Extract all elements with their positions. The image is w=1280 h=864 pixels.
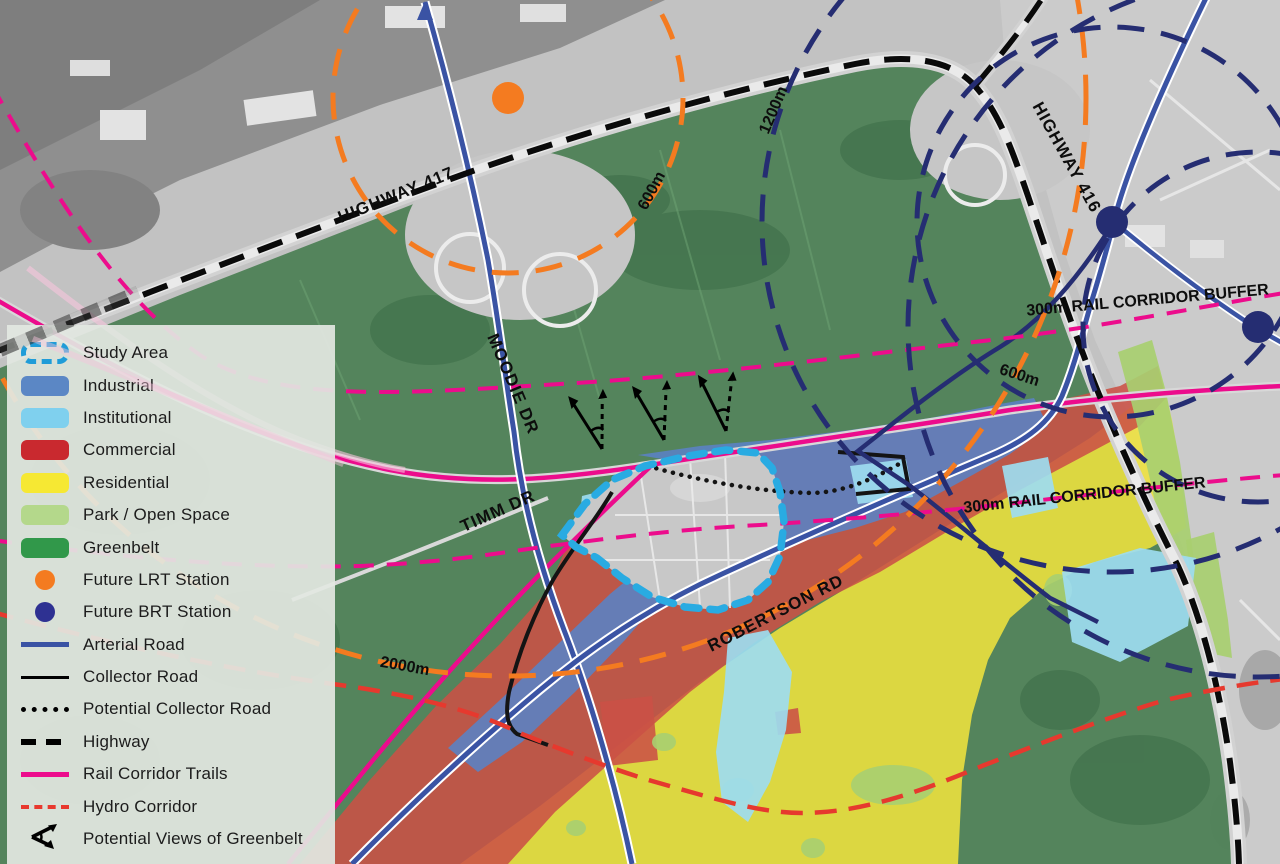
park-open-space-symbol bbox=[21, 505, 69, 525]
institutional-swatch bbox=[21, 408, 69, 428]
rail-corridor-trails-symbol bbox=[21, 772, 69, 777]
potential-collector-road-symbol bbox=[21, 707, 69, 712]
legend-item-future-brt-station: Future BRT Station bbox=[21, 596, 335, 628]
legend-item-potential-views-of-greenbelt: Potential Views of Greenbelt bbox=[21, 823, 335, 855]
hydro-corridor-symbol bbox=[21, 805, 69, 809]
legend-item-label: Potential Views of Greenbelt bbox=[83, 829, 303, 849]
legend-item-arterial-road: Arterial Road bbox=[21, 629, 335, 661]
legend-item-residential: Residential bbox=[21, 467, 335, 499]
potential-views-icon bbox=[27, 822, 63, 857]
future-brt-station-dot bbox=[1096, 206, 1128, 238]
future-brt-station-dot bbox=[1242, 311, 1274, 343]
legend-item-industrial: Industrial bbox=[21, 369, 335, 401]
legend-item-label: Future BRT Station bbox=[83, 602, 232, 622]
legend-item-label: Residential bbox=[83, 473, 169, 493]
legend-item-label: Rail Corridor Trails bbox=[83, 764, 228, 784]
future-brt-station-swatch bbox=[21, 602, 69, 622]
legend-item-park-open-space: Park / Open Space bbox=[21, 499, 335, 531]
legend-item-future-lrt-station: Future LRT Station bbox=[21, 564, 335, 596]
park-open-space-swatch bbox=[21, 505, 69, 525]
hydro-corridor-swatch bbox=[21, 805, 69, 809]
legend-item-label: Arterial Road bbox=[83, 635, 185, 655]
legend-item-commercial: Commercial bbox=[21, 434, 335, 466]
study-area-symbol bbox=[21, 342, 69, 364]
legend-item-collector-road: Collector Road bbox=[21, 661, 335, 693]
legend-item-label: Collector Road bbox=[83, 667, 198, 687]
legend-item-potential-collector-road: Potential Collector Road bbox=[21, 693, 335, 725]
legend-item-label: Institutional bbox=[83, 408, 172, 428]
legend-item-label: Park / Open Space bbox=[83, 505, 230, 525]
legend-item-rail-corridor-trails: Rail Corridor Trails bbox=[21, 758, 335, 790]
future-lrt-station-swatch bbox=[21, 570, 69, 590]
greenbelt-swatch bbox=[21, 538, 69, 558]
collector-road-swatch bbox=[21, 676, 69, 679]
study-area-swatch bbox=[21, 342, 69, 364]
future-brt-station-symbol bbox=[35, 602, 55, 622]
legend-item-label: Study Area bbox=[83, 343, 168, 363]
planning-map-page: HIGHWAY 417 HIGHWAY 416 MOODIE DR TIMM D… bbox=[0, 0, 1280, 864]
industrial-symbol bbox=[21, 376, 69, 396]
residential-swatch bbox=[21, 473, 69, 493]
legend-item-label: Potential Collector Road bbox=[83, 699, 271, 719]
future-lrt-station-dot bbox=[492, 82, 524, 114]
potential-views-of-greenbelt-swatch bbox=[21, 822, 69, 857]
greenbelt-symbol bbox=[21, 538, 69, 558]
legend-item-greenbelt: Greenbelt bbox=[21, 531, 335, 563]
arterial-road-swatch bbox=[21, 642, 69, 647]
legend-item-label: Industrial bbox=[83, 376, 154, 396]
legend-panel: Study AreaIndustrialInstitutionalCommerc… bbox=[7, 325, 335, 864]
legend-item-label: Future LRT Station bbox=[83, 570, 230, 590]
legend-item-label: Hydro Corridor bbox=[83, 797, 197, 817]
arterial-road-symbol bbox=[21, 642, 69, 647]
industrial-swatch bbox=[21, 376, 69, 396]
legend-item-study-area: Study Area bbox=[21, 337, 335, 369]
rail-corridor-trails-swatch bbox=[21, 772, 69, 777]
future-lrt-station-symbol bbox=[35, 570, 55, 590]
commercial-symbol bbox=[21, 440, 69, 460]
legend-item-institutional: Institutional bbox=[21, 402, 335, 434]
residential-symbol bbox=[21, 473, 69, 493]
commercial-swatch bbox=[21, 440, 69, 460]
highway-swatch bbox=[21, 739, 69, 745]
legend-item-label: Greenbelt bbox=[83, 538, 159, 558]
legend-item-label: Highway bbox=[83, 732, 150, 752]
potential-collector-road-swatch bbox=[21, 707, 69, 712]
institutional-symbol bbox=[21, 408, 69, 428]
legend-item-hydro-corridor: Hydro Corridor bbox=[21, 790, 335, 822]
legend-item-highway: Highway bbox=[21, 726, 335, 758]
highway-symbol bbox=[21, 739, 69, 745]
collector-road-symbol bbox=[21, 676, 69, 679]
legend-item-label: Commercial bbox=[83, 440, 176, 460]
